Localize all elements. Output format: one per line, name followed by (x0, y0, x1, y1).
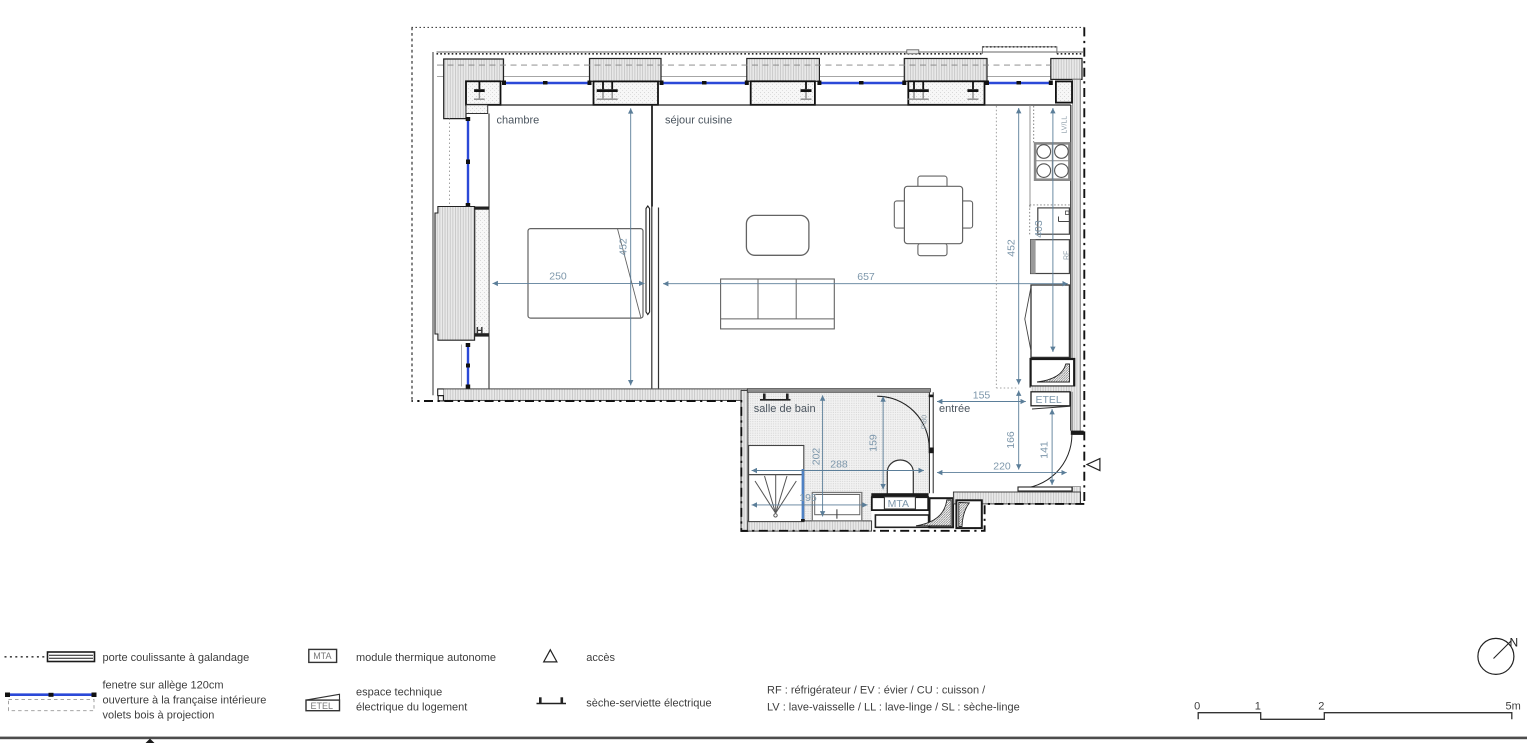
svg-text:ETEL: ETEL (311, 701, 334, 711)
svg-text:202: 202 (811, 448, 823, 466)
svg-text:MTA: MTA (888, 498, 909, 510)
svg-text:1: 1 (1255, 701, 1261, 713)
svg-text:166: 166 (1005, 431, 1017, 449)
svg-text:ETEL: ETEL (1036, 394, 1062, 406)
svg-text:P\80: P\80 (922, 415, 929, 430)
svg-text:porte coulissante à galandage: porte coulissante à galandage (103, 652, 250, 664)
svg-text:H: H (476, 326, 483, 337)
svg-text:2: 2 (1318, 701, 1324, 713)
svg-text:159: 159 (867, 434, 879, 452)
svg-text:250: 250 (549, 271, 567, 283)
svg-text:0: 0 (1194, 701, 1200, 713)
svg-text:141: 141 (1039, 441, 1051, 459)
svg-text:accès: accès (586, 652, 615, 664)
svg-text:LV/LL: LV/LL (1062, 116, 1069, 134)
svg-text:LV : lave-vaisselle / LL : lav: LV : lave-vaisselle / LL : lave-linge / … (767, 702, 1020, 714)
svg-text:volets bois à projection: volets bois à projection (103, 710, 215, 722)
svg-text:chambre: chambre (497, 115, 540, 127)
svg-text:sèche-serviette électrique: sèche-serviette électrique (586, 698, 711, 710)
svg-text:RF : réfrigérateur / EV : évie: RF : réfrigérateur / EV : évier / CU : c… (767, 685, 986, 697)
svg-text:salle de bain: salle de bain (754, 403, 816, 415)
svg-text:452: 452 (1005, 239, 1017, 257)
svg-text:séjour cuisine: séjour cuisine (665, 115, 732, 127)
svg-text:155: 155 (973, 389, 991, 401)
svg-text:220: 220 (993, 460, 1011, 472)
svg-text:électrique du logement: électrique du logement (356, 702, 467, 714)
svg-text:RF: RF (1064, 251, 1071, 260)
svg-text:MTA: MTA (313, 651, 331, 661)
svg-text:module thermique autonome: module thermique autonome (356, 652, 496, 664)
svg-text:403: 403 (1033, 220, 1045, 238)
svg-text:N: N (1510, 636, 1519, 650)
svg-text:657: 657 (857, 271, 875, 283)
svg-text:ouverture à la française intér: ouverture à la française intérieure (103, 695, 267, 707)
svg-text:espace technique: espace technique (356, 687, 442, 699)
svg-text:5m: 5m (1506, 701, 1521, 713)
svg-text:fenetre sur allège 120cm: fenetre sur allège 120cm (103, 680, 224, 692)
svg-text:entrée: entrée (939, 403, 970, 415)
svg-text:195: 195 (799, 492, 817, 504)
svg-text:452: 452 (617, 238, 629, 256)
svg-text:288: 288 (830, 459, 848, 471)
